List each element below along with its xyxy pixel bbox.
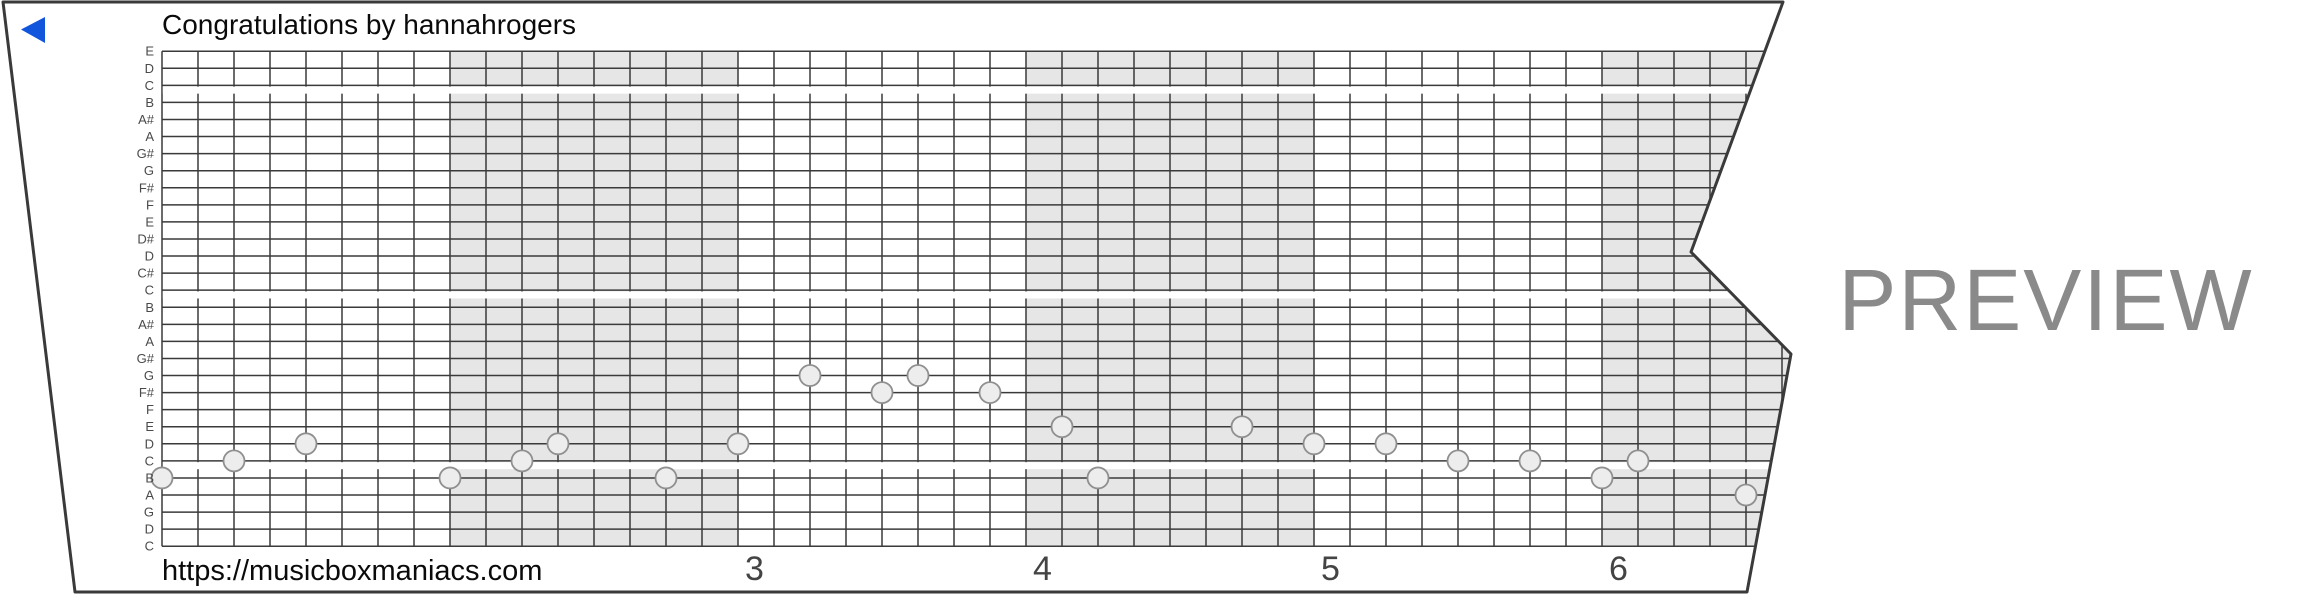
note-row-label: B: [145, 95, 154, 110]
note-row-label: F: [146, 402, 154, 417]
note-circle: [1304, 433, 1325, 454]
page-title: Congratulations by hannahrogers: [162, 9, 576, 40]
note-row-label: D: [145, 522, 154, 537]
note-row-label: D: [145, 249, 154, 264]
melody-preview-image: EDCBA#AG#GF#FED#DC#CBA#AG#GF#FEDCBAGDC 3…: [0, 0, 2310, 597]
note-circle: [512, 450, 533, 471]
note-row-label: E: [145, 214, 154, 229]
measure-number: 6: [1609, 550, 1628, 588]
note-row-label: B: [145, 470, 154, 485]
octave-gap: [163, 291, 1921, 298]
note-circle: [1520, 450, 1541, 471]
note-circle: [1628, 450, 1649, 471]
note-row-label: C: [145, 453, 154, 468]
note-circle: [1448, 450, 1469, 471]
note-row-label: G: [144, 368, 154, 383]
note-row-label: A#: [138, 112, 155, 127]
note-row-label: F: [146, 197, 154, 212]
note-row-label: C: [145, 283, 154, 298]
note-circle: [296, 433, 317, 454]
note-row-label: F#: [139, 385, 155, 400]
note-row-label: C#: [137, 266, 154, 281]
note-circle: [152, 467, 173, 488]
note-row-label: G: [144, 505, 154, 520]
note-row-label: B: [145, 300, 154, 315]
note-row-label: D#: [137, 231, 154, 246]
octave-gap: [163, 87, 1921, 94]
note-row-label: G: [144, 163, 154, 178]
note-circle: [1088, 467, 1109, 488]
note-circle: [728, 433, 749, 454]
note-circle: [1376, 433, 1397, 454]
footer-url: https://musicboxmaniacs.com: [162, 555, 542, 587]
note-row-label: A: [145, 334, 154, 349]
note-circle: [980, 382, 1001, 403]
note-circle: [872, 382, 893, 403]
note-circle: [908, 365, 929, 386]
preview-watermark: PREVIEW: [1838, 252, 2253, 349]
measure-number: 5: [1321, 550, 1340, 588]
note-circle: [1592, 467, 1613, 488]
note-row-label: D: [145, 61, 154, 76]
octave-gap: [163, 462, 1921, 469]
measure-number: 4: [1033, 550, 1052, 588]
note-row-label: E: [145, 419, 154, 434]
note-circle: [440, 467, 461, 488]
note-row-label: A: [145, 129, 154, 144]
note-row-label: E: [145, 44, 154, 59]
note-row-label: G#: [137, 351, 155, 366]
note-row-label: F#: [139, 180, 155, 195]
note-circle: [656, 467, 677, 488]
music-strip: EDCBA#AG#GF#FED#DC#CBA#AG#GF#FEDCBAGDC 3…: [0, 0, 2310, 597]
note-row-label: C: [145, 78, 154, 93]
note-row-label: D: [145, 436, 154, 451]
note-circle: [548, 433, 569, 454]
note-circle: [224, 450, 245, 471]
note-circle: [1052, 416, 1073, 437]
note-row-label: C: [145, 539, 154, 554]
note-row-label: A: [145, 488, 154, 503]
note-circle: [1736, 485, 1757, 506]
note-row-label: A#: [138, 317, 155, 332]
note-circle: [1232, 416, 1253, 437]
note-circle: [800, 365, 821, 386]
note-row-label: G#: [137, 146, 155, 161]
measure-number: 3: [745, 550, 764, 588]
